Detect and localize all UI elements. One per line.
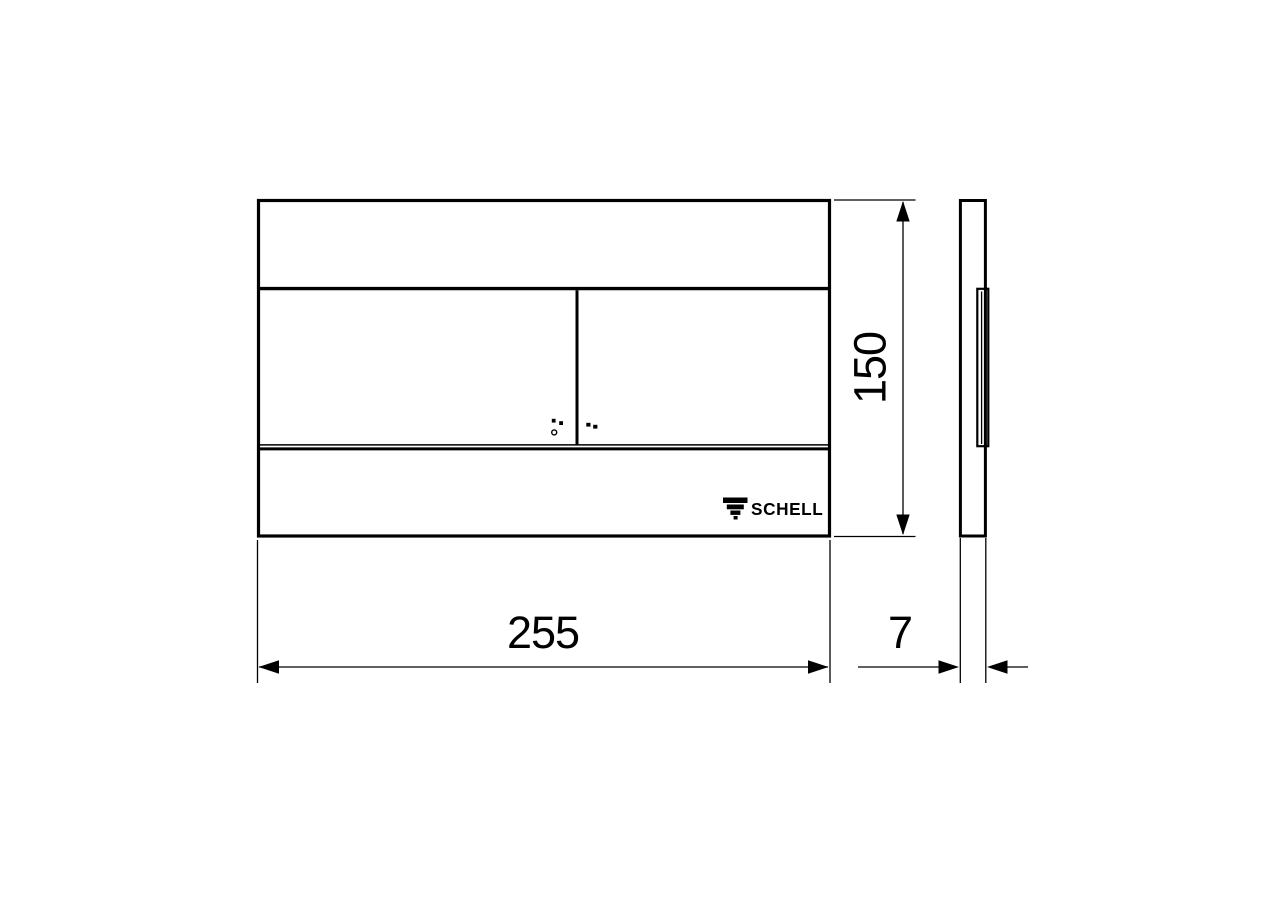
depth-dimension-label: 7 [888,607,912,658]
arrowhead-down-icon [896,515,909,536]
logo-bar [723,498,748,504]
logo-bar [727,505,744,510]
logo-bar [734,516,738,520]
dimension-height: 150 [834,200,916,537]
tactile-dot [552,419,556,423]
schell-logo-icon [723,498,748,520]
arrowhead-up-icon [896,201,909,222]
arrowhead-left-icon [987,660,1008,674]
tactile-ring [552,430,557,435]
schell-logo-text: SCHELL [751,499,823,519]
logo-bar [730,511,740,515]
dimension-width: 255 [258,540,831,683]
drawing-canvas: SCHELL 255 150 [0,0,1280,900]
tactile-small-flush-icon [586,423,597,429]
arrowhead-right-icon [939,660,960,674]
side-view [960,201,988,537]
arrowhead-right-icon [808,660,829,674]
arrowhead-left-icon [259,660,280,674]
front-view: SCHELL [258,201,830,537]
tactile-dot [559,421,563,425]
technical-drawing: SCHELL 255 150 [0,0,1280,900]
height-dimension-label: 150 [845,332,896,404]
dimension-depth: 7 [858,538,1028,683]
plate-outline [259,201,830,537]
tactile-dot [593,425,597,429]
tactile-large-flush-icon [552,419,563,435]
tactile-dot [586,423,590,427]
width-dimension-label: 255 [507,607,579,658]
schell-logo: SCHELL [723,498,823,520]
